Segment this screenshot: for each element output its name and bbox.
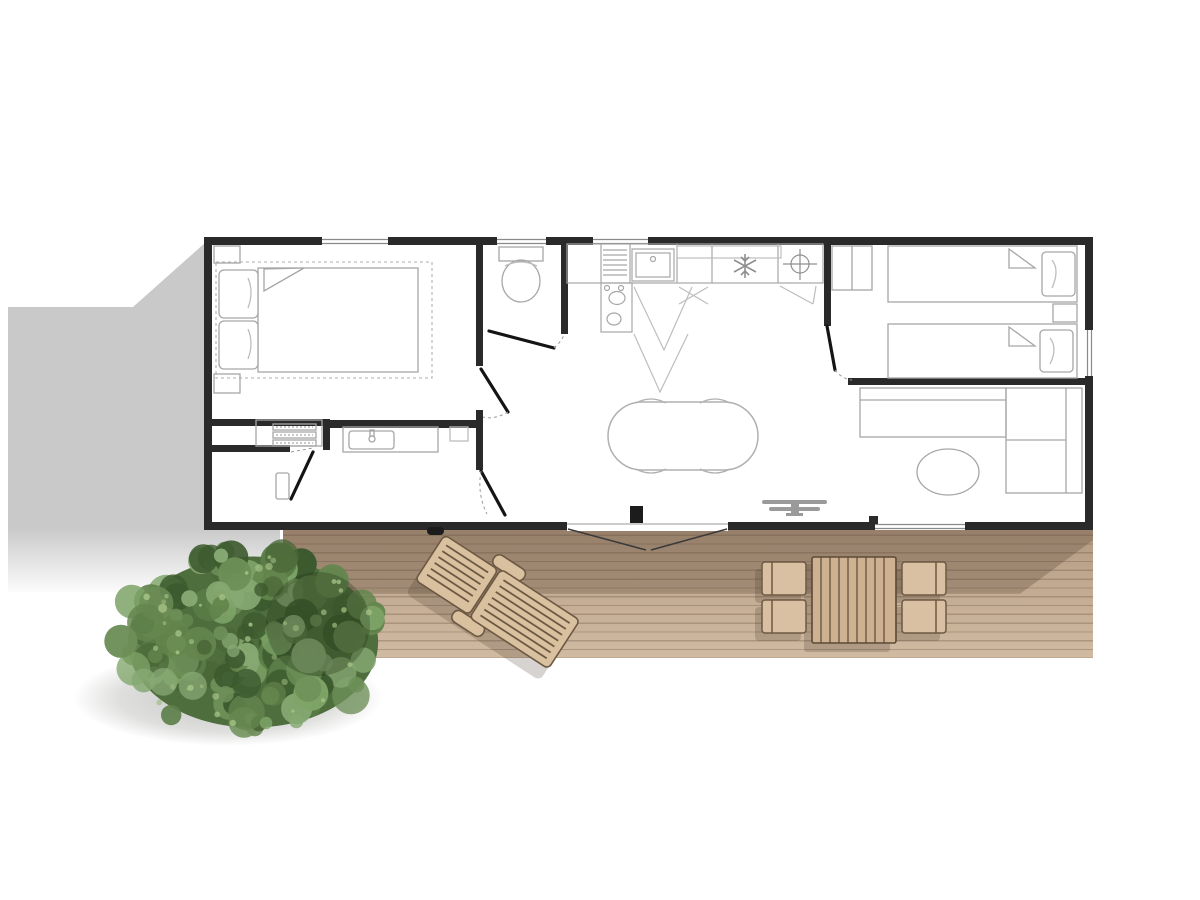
window-right — [1085, 330, 1093, 376]
pillow — [219, 270, 258, 318]
chair — [762, 562, 806, 595]
dining-table-oval — [608, 399, 758, 473]
sun-lounger — [406, 523, 587, 681]
patio-door-swing-right — [651, 529, 727, 550]
outdoor-dining-set — [755, 557, 946, 652]
tree — [73, 539, 385, 746]
window-bottom — [875, 522, 965, 530]
outdoor-table — [812, 557, 896, 643]
chair — [902, 600, 946, 633]
pillow — [219, 321, 258, 369]
window-top-1 — [322, 237, 388, 245]
chair — [902, 562, 946, 595]
floor-plan-scene — [0, 0, 1200, 900]
window-top-2 — [497, 237, 546, 245]
building — [204, 237, 1093, 550]
patio-door-post — [630, 506, 643, 523]
patio-door-swing-left — [568, 529, 646, 550]
chair — [762, 600, 806, 633]
deck-items — [406, 523, 946, 681]
plan-drawing — [0, 0, 1200, 900]
door-step — [427, 527, 444, 535]
